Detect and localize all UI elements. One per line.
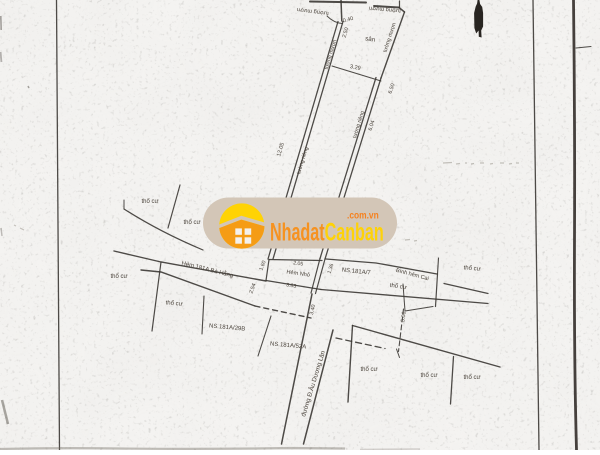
- svg-text:NhadatCanban: NhadatCanban: [270, 219, 384, 246]
- svg-text:thổ cư: thổ cư: [360, 366, 377, 373]
- svg-text:sân: sân: [365, 35, 376, 43]
- svg-text:thổ cư: thổ cư: [420, 372, 437, 379]
- svg-text:thổ cư: thổ cư: [463, 374, 480, 381]
- svg-text:thổ cư: thổ cư: [110, 273, 127, 280]
- svg-text:.com.vn: .com.vn: [347, 210, 379, 221]
- svg-text:thổ cư: thổ cư: [183, 219, 200, 226]
- svg-text:thổ cư: thổ cư: [141, 198, 158, 205]
